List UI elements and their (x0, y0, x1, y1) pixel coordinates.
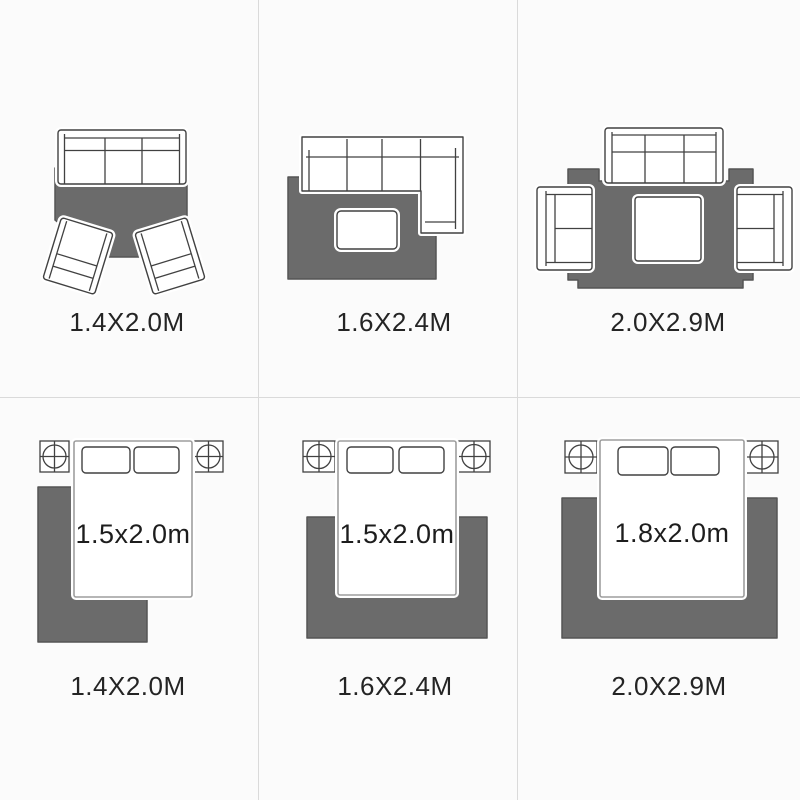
nightstand-lamp-icon (565, 441, 597, 473)
armchair-icon (43, 218, 113, 295)
pillow-icon (347, 447, 393, 473)
bed-size-label: 1.5x2.0m (339, 519, 454, 549)
nightstand-lamp-icon (303, 441, 335, 472)
rug-size-label: 2.0X2.9M (610, 307, 725, 337)
rug-size-label: 1.4X2.0M (69, 307, 184, 337)
sofa-icon (58, 130, 186, 184)
rug-size-guide: 1.4X2.0M 1.6X2.4M (0, 0, 800, 800)
living-room-layout-1: 1.4X2.0M (43, 130, 205, 337)
rug-size-label: 1.6X2.4M (337, 671, 452, 701)
bed-size-label: 1.5x2.0m (75, 519, 190, 549)
bed-icon: 1.5x2.0m (338, 441, 456, 595)
bedroom-layout-2: 1.5x2.0m 1.6X2.4M (303, 441, 490, 701)
rug-size-label: 1.4X2.0M (70, 671, 185, 701)
rug-size-label: 1.6X2.4M (336, 307, 451, 337)
coffee-table-icon (337, 211, 397, 249)
armchair-icon (135, 218, 205, 295)
diagram-canvas: 1.4X2.0M 1.6X2.4M (0, 0, 800, 800)
pillow-icon (671, 447, 719, 475)
loveseat-icon (737, 187, 792, 270)
pillow-icon (618, 447, 668, 475)
rug-size-label: 2.0X2.9M (611, 671, 726, 701)
pillow-icon (134, 447, 179, 473)
nightstand-lamp-icon (40, 441, 69, 472)
bed-size-label: 1.8x2.0m (614, 518, 729, 548)
nightstand-lamp-icon (746, 441, 778, 473)
loveseat-icon (537, 187, 592, 270)
living-room-layout-3: 2.0X2.9M (537, 128, 792, 337)
sofa-icon (605, 128, 723, 183)
pillow-icon (399, 447, 444, 473)
bedroom-layout-3: 1.8x2.0m 2.0X2.9M (562, 440, 778, 701)
living-room-layout-2: 1.6X2.4M (288, 137, 463, 337)
bed-icon: 1.5x2.0m (74, 441, 192, 597)
pillow-icon (82, 447, 130, 473)
nightstand-lamp-icon (194, 441, 223, 472)
bedroom-layout-1: 1.5x2.0m 1.4X2.0M (38, 441, 223, 701)
nightstand-lamp-icon (458, 441, 490, 472)
coffee-table-icon (635, 197, 701, 261)
bed-icon: 1.8x2.0m (600, 440, 744, 597)
